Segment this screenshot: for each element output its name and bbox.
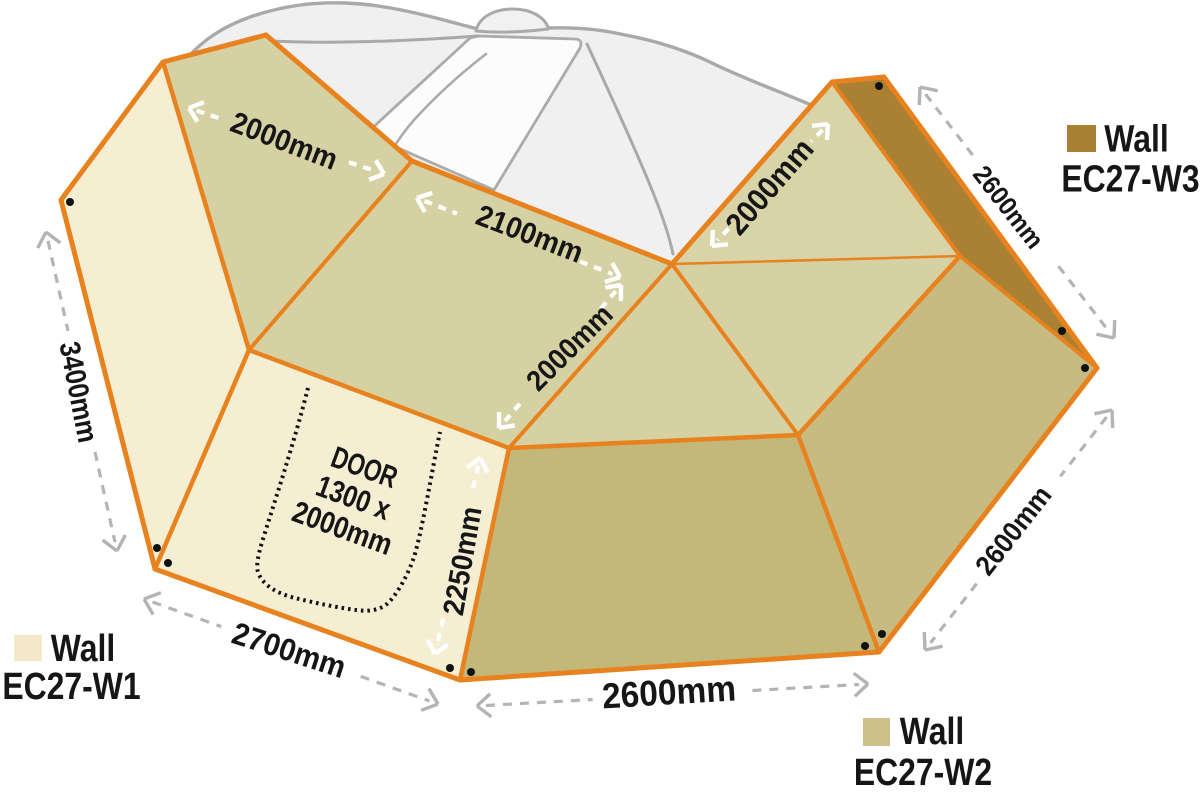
svg-text:Wall: Wall [900, 710, 964, 752]
svg-text:Wall: Wall [1104, 118, 1168, 160]
svg-text:EC27-W2: EC27-W2 [854, 751, 992, 793]
svg-text:EC27-W1: EC27-W1 [2, 665, 140, 707]
svg-text:Wall: Wall [51, 627, 115, 669]
svg-text:2600mm: 2600mm [601, 669, 737, 716]
svg-text:EC27-W3: EC27-W3 [1061, 158, 1199, 200]
